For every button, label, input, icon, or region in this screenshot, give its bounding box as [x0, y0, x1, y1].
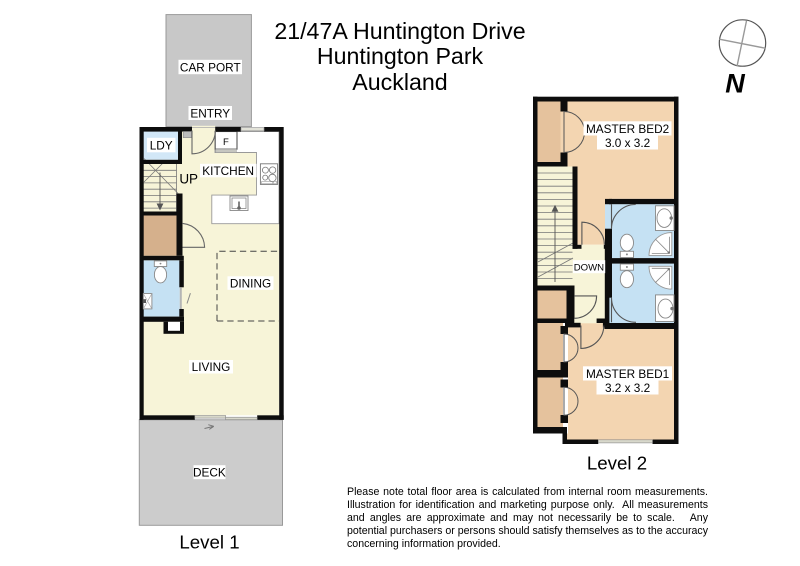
- svg-text:LIVING: LIVING: [192, 360, 231, 374]
- svg-text:UP: UP: [179, 171, 198, 186]
- svg-text:CAR PORT: CAR PORT: [180, 60, 241, 74]
- svg-text:3.0 x 3.2: 3.0 x 3.2: [605, 136, 650, 150]
- svg-text:MASTER BED2: MASTER BED2: [586, 122, 669, 136]
- svg-text:Level 2: Level 2: [587, 453, 647, 474]
- svg-text:KITCHEN: KITCHEN: [202, 164, 254, 178]
- svg-text:LDY: LDY: [150, 138, 173, 152]
- svg-text:DECK: DECK: [193, 466, 226, 480]
- svg-text:Level 1: Level 1: [179, 532, 239, 553]
- svg-text:ENTRY: ENTRY: [190, 107, 230, 121]
- svg-text:DOWN: DOWN: [574, 262, 604, 273]
- svg-text:MASTER BED1: MASTER BED1: [586, 367, 669, 381]
- svg-text:N: N: [725, 69, 745, 99]
- svg-text:F: F: [223, 137, 229, 148]
- svg-text:3.2 x 3.2: 3.2 x 3.2: [605, 381, 650, 395]
- svg-text:DINING: DINING: [230, 276, 271, 290]
